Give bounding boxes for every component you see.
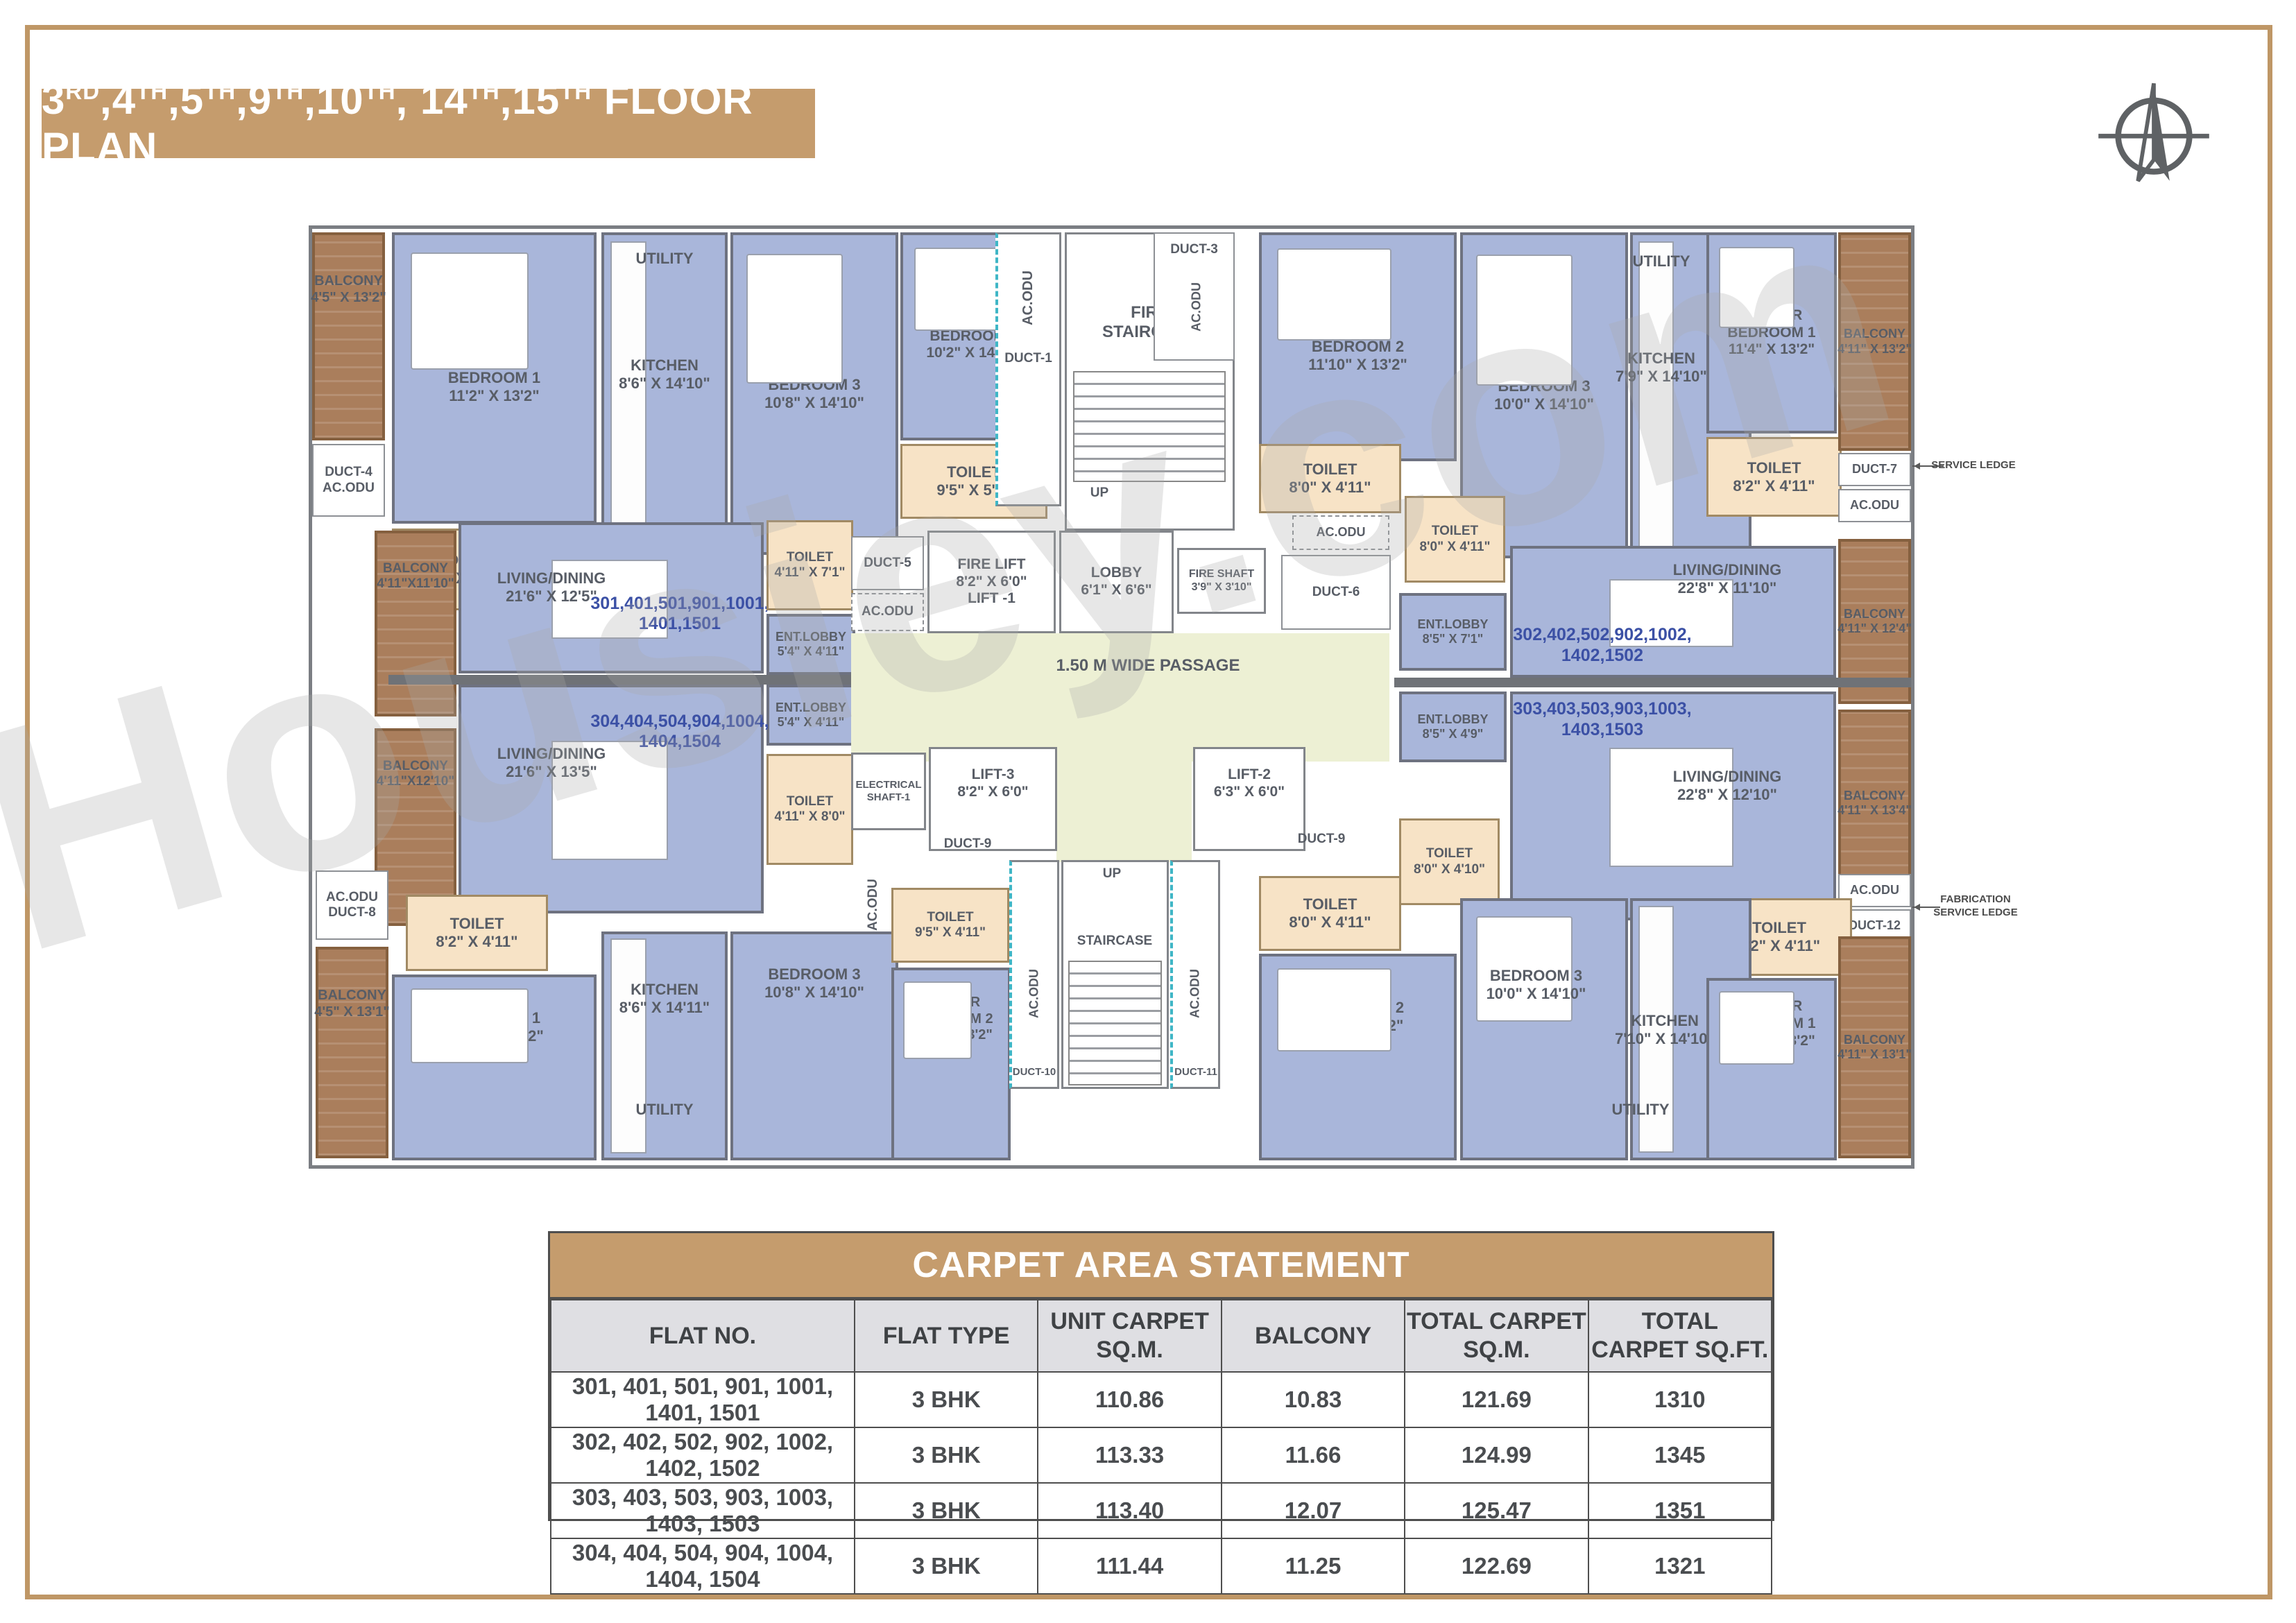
duct-4-box-label: DUCT-4AC.ODU [314,445,384,515]
utility-303-label-text: UTILITY [1611,1101,1669,1119]
acodu-1-vlabel: AC.ODU [1001,246,1056,350]
ent-lobby-303-text: 8'5" X 4'9" [1423,727,1484,741]
bedroom3-303-label-text: BEDROOM 3 [1490,967,1582,985]
duct-9-right-label-label: DUCT-9 [1283,827,1360,852]
table-cell: 10.83 [1222,1372,1405,1427]
bed-icon [411,988,529,1063]
table-row: 304, 404, 504, 904, 1004, 1404, 15043 BH… [551,1538,1772,1594]
ordinal-suffix: RD [65,78,100,104]
toilet-302-a: TOILET8'0" X 4'11" [1259,444,1401,513]
table-cell: 3 BHK [855,1538,1038,1594]
balcony-303-living: BALCONY4'11" X 13'4" [1838,710,1911,897]
toilet-301-b-text: TOILET [787,550,833,565]
ent-lobby-302-text: ENT.LOBBY [1417,617,1488,632]
electrical-shaft: ELECTRICALSHAFT-1 [851,753,926,830]
living-302-label-label: LIVING/DINING22'8" X 11'10" [1644,551,1810,607]
bedroom3-301-text: 10'8" X 14'10" [764,394,864,412]
staircase-lower-label-label: STAIRCASE [1063,929,1167,954]
fabrication-ledge-note: FABRICATIONSERVICE LEDGE [1924,886,2028,927]
acodu-11-vlabel: AC.ODU [1174,936,1216,1051]
utility-302-label-label: UTILITY [1599,248,1724,275]
duct-8-box-text: DUCT-8 [328,905,376,920]
table-cell: 110.86 [1038,1372,1221,1427]
acodu-7-box-label: AC.ODU [1840,490,1910,521]
balcony-303: BALCONY4'11" X 13'1" [1838,936,1911,1158]
duct-5-box: DUCT-5 [851,536,924,590]
acodu-302-box-text: AC.ODU [1317,525,1366,540]
duct-10-label-label: DUCT-10 [1004,1061,1065,1083]
balcony-301-label: BALCONY4'5" X 13'2" [315,235,382,476]
floor-plan-title-text: 3RD,4TH,5TH,9TH,10TH, 14TH,15TH FLOOR PL… [42,76,815,171]
lobby-text: 6'1" X 6'6" [1081,582,1151,599]
table-cell: 121.69 [1405,1372,1588,1427]
table-cell: 124.99 [1405,1427,1588,1483]
wing-divider-right [1394,678,1911,687]
duct-5-box-label: DUCT-5 [853,538,923,589]
utility-301-label-label: UTILITY [601,245,728,273]
kitchen-302-label-text: KITCHEN [1627,350,1695,368]
flatnums-302-text: 1402,1502 [1561,646,1643,667]
balcony-303-living-text: BALCONY [1844,789,1905,803]
table-cell: 3 BHK [855,1483,1038,1538]
ent-lobby-303-label: ENT.LOBBY8'5" X 4'9" [1402,694,1504,759]
toilet-302-c-text: TOILET [1432,524,1478,539]
bed-icon [1277,968,1391,1051]
lobby-text: LOBBY [1091,565,1142,582]
bedroom3-304-text: 10'8" X 14'10" [764,984,864,1002]
kitchen-302-label-text: 7'9" X 14'10" [1616,368,1707,386]
bed-icon [1277,248,1391,341]
bed-icon [914,248,999,332]
kitchen-304-label-label: KITCHEN8'6" X 14'11" [601,971,728,1027]
acodu-5-box-label: AC.ODU [853,594,923,630]
kitchen-303-label-text: 7'10" X 14'10" [1615,1030,1715,1048]
living-304-label-label: LIVING/DINING21'6" X 13'5" [468,735,635,791]
lift-2-text: 6'3" X 6'0" [1214,784,1285,801]
toilet-301-b-text: 4'11" X 7'1" [774,565,845,581]
flatnums-301-text: 1401,1501 [639,614,721,635]
kitchen-304-label-text: 8'6" X 14'11" [619,999,710,1017]
utility-301-label: UTILITY [601,245,728,273]
toilet-304-c: TOILET9'5" X 4'11" [891,888,1009,963]
master-bedroom1-304: MASTERBEDROOM 111'10" X 13'2" [392,974,597,1160]
toilet-302-b: TOILET8'2" X 4'11" [1706,437,1842,517]
living-303-label-text: 22'8" X 12'10" [1677,786,1777,804]
staircase-lower-steps [1068,961,1162,1085]
lift-3-text: LIFT-3 [972,766,1015,784]
toilet-304-b-text: TOILET [787,794,833,809]
duct-9-right-label: DUCT-9 [1283,827,1360,852]
lift-2-text: LIFT-2 [1228,766,1271,784]
duct-9-left-label: DUCT-9 [929,832,1006,857]
service-ledge-note: SERVICE LEDGE [1925,452,2022,479]
duct-11-label-label: DUCT-11 [1165,1061,1226,1083]
toilet-303-a: TOILET8'0" X 4'11" [1259,876,1401,951]
toilet-302-a-label: TOILET8'0" X 4'11" [1261,446,1399,511]
col-header: UNIT CARPETSQ.M. [1038,1300,1221,1372]
table-cell: 1321 [1588,1538,1772,1594]
acodu-bottom-left-vlabel-text: AC.ODU [866,879,881,931]
carpet-grid: FLAT NO.FLAT TYPEUNIT CARPETSQ.M.BALCONY… [550,1299,1772,1595]
acodu-3-vlabel: AC.ODU [1169,264,1224,350]
flatnums-303-text: 303,403,503,903,1003, [1513,699,1691,720]
balcony-301-text: 4'5" X 13'2" [311,290,386,307]
balcony-301-living-label: BALCONY4'11"X11'10" [377,533,454,741]
toilet-301-b-label: TOILET4'11" X 7'1" [769,522,851,608]
acodu-3-vlabel-text: AC.ODU [1189,282,1203,332]
ent-lobby-304-label: ENT.LOBBY5'4" X 4'11" [769,687,853,743]
ent-lobby-301: ENT.LOBBY5'4" X 4'11" [766,614,855,675]
duct-1-label-text: DUCT-1 [1004,351,1052,366]
fire-staircase-steps [1073,371,1226,482]
flatnums-301-text: 301,401,501,901,1001, [590,594,769,615]
toilet-304-b-text: 4'11" X 8'0" [774,809,845,825]
lift-3-text: 8'2" X 6'0" [957,784,1028,801]
ent-lobby-301-text: 5'4" X 4'11" [778,644,845,659]
duct-5-box-text: DUCT-5 [864,556,911,571]
toilet-304-c-text: 9'5" X 4'11" [915,925,986,941]
bed-icon [1719,991,1794,1065]
toilet-304-a-text: 8'2" X 4'11" [436,933,517,951]
passage-lower [1056,759,1192,862]
toilet-302-c-label: TOILET8'0" X 4'11" [1407,498,1503,581]
table-cell: 1345 [1588,1427,1772,1483]
acodu-10-vlabel-label: AC.ODU [1013,936,1055,1051]
passage-label: 1.50 M WIDE PASSAGE [1009,652,1287,680]
toilet-302-a-text: 8'0" X 4'11" [1289,479,1371,497]
table-cell: 11.66 [1222,1427,1405,1483]
toilet-301-b: TOILET4'11" X 7'1" [766,520,853,610]
bedroom3-303-label-label: BEDROOM 310'0" X 14'10" [1462,957,1611,1013]
service-ledge-note-label: SERVICE LEDGE [1925,452,2022,479]
toilet-303-b-label: TOILET8'0" X 4'10" [1401,821,1498,903]
carpet-grid-head: FLAT NO.FLAT TYPEUNIT CARPETSQ.M.BALCONY… [551,1300,1772,1372]
acodu-11-vlabel-label: AC.ODU [1174,936,1216,1051]
acodu-10-vlabel-text: AC.ODU [1027,969,1041,1018]
service-ledge-note-text: SERVICE LEDGE [1931,459,2015,472]
toilet-303-c-text: TOILET [1752,919,1806,937]
living-302-label: LIVING/DINING22'8" X 11'10" [1644,551,1810,607]
kitchen-301-label-text: 8'6" X 14'10" [619,375,710,393]
fire-lift-text: LIFT -1 [968,590,1016,608]
ent-lobby-302: ENT.LOBBY8'5" X 7'1" [1399,593,1507,671]
electrical-shaft-text: ELECTRICAL [856,779,922,791]
toilet-303-b-text: TOILET [1426,846,1473,861]
table-cell: 113.33 [1038,1427,1221,1483]
balcony-302-living-text: BALCONY [1844,607,1905,621]
toilet-303-a-label: TOILET8'0" X 4'11" [1261,878,1399,949]
kitchen-303-label-text: KITCHEN [1631,1012,1699,1030]
carpet-area-table: CARPET AREA STATEMENT FLAT NO.FLAT TYPEU… [548,1231,1774,1521]
toilet-304-a-text: TOILET [450,915,504,933]
ent-lobby-302-text: 8'5" X 7'1" [1423,632,1484,646]
ent-lobby-303: ENT.LOBBY8'5" X 4'9" [1399,692,1507,762]
flatnums-301-label: 301,401,501,901,1001,1401,1501 [597,586,763,642]
duct-8-box-label: AC.ODUDUCT-8 [317,872,387,938]
kitchen-304-label-text: KITCHEN [631,981,699,999]
fire-lift-label: FIRE LIFT8'2" X 6'0"LIFT -1 [929,533,1054,631]
table-row: 302, 402, 502, 902, 1002, 1402, 15023 BH… [551,1427,1772,1483]
acodu-1-vlabel-label: AC.ODU [1001,246,1056,350]
acodu-7-box: AC.ODU [1838,489,1911,522]
acodu-302-box-label: AC.ODU [1294,517,1388,549]
balcony-302-living-text: 4'11" X 12'4" [1837,621,1912,636]
table-cell: 122.69 [1405,1538,1588,1594]
toilet-304-b-label: TOILET4'11" X 8'0" [769,756,851,863]
table-cell: 3 BHK [855,1372,1038,1427]
up-2-label-label: UP [1084,864,1140,884]
flatnums-303-label: 303,403,503,903,1003,1403,1503 [1516,694,1689,746]
duct-10-label: DUCT-10 [1004,1061,1065,1083]
living-303-label: LIVING/DINING22'8" X 12'10" [1644,758,1810,814]
balcony-301-text: BALCONY [314,273,383,290]
acodu-bottom-left-vlabel-label: AC.ODU [853,832,894,978]
duct-4-box-text: AC.ODU [323,481,375,496]
balcony-302-label: BALCONY4'11" X 13'2" [1841,235,1908,448]
duct-9-left-label-label: DUCT-9 [929,832,1006,857]
toilet-302-b-text: TOILET [1747,459,1801,477]
utility-302-label-text: UTILITY [1632,252,1690,270]
living-301-label-text: LIVING/DINING [497,569,606,587]
duct-3-box-text: DUCT-3 [1170,242,1218,257]
ordinal-suffix: TH [468,78,500,104]
flatnums-302-label: 302,402,502,902,1002,1402,1502 [1516,619,1689,671]
table-cell: 125.47 [1405,1483,1588,1538]
up-1-label-text: UP [1090,486,1108,501]
toilet-303-b: TOILET8'0" X 4'10" [1399,818,1500,905]
col-header: FLAT NO. [551,1300,855,1372]
table-cell: 11.25 [1222,1538,1405,1594]
living-301-label-text: 21'6" X 12'5" [506,587,597,606]
acodu-302-box: AC.ODU [1292,515,1389,550]
master-bedroom1-302-text: 11'4" X 13'2" [1729,341,1815,359]
ordinal-suffix: TH [204,78,236,104]
electrical-shaft-text: SHAFT-1 [867,791,911,804]
flatnums-303: 303,403,503,903,1003,1403,1503 [1516,694,1689,746]
acodu-3-vlabel-label: AC.ODU [1169,264,1224,350]
kitchen-304 [601,931,728,1160]
table-cell: 302, 402, 502, 902, 1002, 1402, 1502 [551,1427,855,1483]
duct-7-box: DUCT-7 [1838,453,1911,486]
fire-lift-text: 8'2" X 6'0" [956,574,1027,591]
duct-12-box-text: DUCT-12 [1849,918,1901,933]
table-cell: 1351 [1588,1483,1772,1538]
balcony-304-living-text: BALCONY [383,759,448,774]
duct-6-box: DUCT-6 [1281,555,1391,630]
fabrication-ledge-note-text: SERVICE LEDGE [1933,907,2017,920]
living-304-label: LIVING/DINING21'6" X 13'5" [468,735,635,791]
ent-lobby-304-text: 5'4" X 4'11" [778,715,845,730]
toilet-302-c-text: 8'0" X 4'11" [1419,540,1490,555]
kitchen-304-label: KITCHEN8'6" X 14'11" [601,971,728,1027]
duct-9-right-label-text: DUCT-9 [1298,832,1346,847]
acodu-bottom-left-vlabel: AC.ODU [853,832,894,978]
toilet-304-c-text: TOILET [927,910,973,925]
electrical-shaft-label: ELECTRICALSHAFT-1 [853,755,924,828]
up-2-label: UP [1084,864,1140,884]
acodu-10-vlabel: AC.ODU [1013,936,1055,1051]
table-row: 301, 401, 501, 901, 1001, 1401, 15013 BH… [551,1372,1772,1427]
balcony-301: BALCONY4'5" X 13'2" [312,232,385,440]
duct-7-box-text: DUCT-7 [1852,462,1897,476]
toilet-301-c-text: TOILET [947,463,1001,481]
toilet-302-b-text: 8'2" X 4'11" [1733,477,1815,495]
master-bedroom1-301: MASTERBEDROOM 111'2" X 13'2" [392,232,597,524]
balcony-302-text: BALCONY [1844,327,1905,341]
flatnums-302-text: 302,402,502,902,1002, [1513,625,1691,646]
bed-icon [1719,247,1794,328]
duct-7-box-label: DUCT-7 [1840,454,1910,485]
ent-lobby-301-text: ENT.LOBBY [776,630,846,644]
col-header: FLAT TYPE [855,1300,1038,1372]
ordinal-suffix: TH [560,78,592,104]
fire-shaft-label: FIRE SHAFT3'9" X 3'10" [1179,550,1264,612]
utility-304-label-text: UTILITY [635,1101,693,1119]
bed-icon [903,981,972,1059]
balcony-303-living-label: BALCONY4'11" X 13'4" [1841,712,1908,894]
utility-304-label: UTILITY [601,1096,728,1124]
acodu-12-box-text: AC.ODU [1850,883,1899,898]
acodu-5-box: AC.ODU [851,593,924,631]
balcony-301-living: BALCONY4'11"X11'10" [375,531,456,716]
utility-303-label: UTILITY [1578,1096,1703,1124]
toilet-303-a-text: TOILET [1303,895,1357,913]
kitchen-301-label: KITCHEN8'6" X 14'10" [601,347,728,402]
balcony-303-label: BALCONY4'11" X 13'1" [1841,939,1908,1156]
toilet-304-c-label: TOILET9'5" X 4'11" [893,890,1007,961]
duct-4-box: DUCT-4AC.ODU [312,444,385,517]
master-bedroom2-303: MASTERBEDROOM 212'1" X 13'2" [1259,954,1457,1160]
ent-lobby-304-text: ENT.LOBBY [776,701,846,715]
bedroom3-303-label: BEDROOM 310'0" X 14'10" [1462,957,1611,1013]
balcony-303-living-text: 4'11" X 13'4" [1837,803,1912,818]
living-304-label-text: LIVING/DINING [497,745,606,763]
ent-lobby-302-label: ENT.LOBBY8'5" X 7'1" [1402,596,1504,668]
fire-shaft-text: 3'9" X 3'10" [1192,581,1252,594]
fire-shaft-text: FIRE SHAFT [1189,568,1254,581]
ent-lobby-304: ENT.LOBBY5'4" X 4'11" [766,685,855,746]
balcony-302-text: 4'11" X 13'2" [1837,342,1912,357]
carpet-header-row: FLAT NO.FLAT TYPEUNIT CARPETSQ.M.BALCONY… [551,1300,1772,1372]
lobby-label: LOBBY6'1" X 6'6" [1061,533,1172,631]
balcony-302: BALCONY4'11" X 13'2" [1838,232,1911,451]
duct-1-label-label: DUCT-1 [995,347,1061,371]
balcony-303-text: 4'11" X 13'1" [1837,1047,1912,1062]
staircase-lower-label-text: STAIRCASE [1077,934,1152,949]
toilet-302-b-label: TOILET8'2" X 4'11" [1708,439,1840,515]
duct-10-label-text: DUCT-10 [1013,1066,1056,1079]
table-cell: 1310 [1588,1372,1772,1427]
balcony-301-living-text: BALCONY [383,561,448,576]
toilet-304-b: TOILET4'11" X 8'0" [766,754,853,865]
bed-icon [411,252,529,370]
toilet-303-b-text: 8'0" X 4'10" [1414,862,1485,877]
bedroom3-301: BEDROOM 310'8" X 14'10" [730,232,898,555]
fabrication-ledge-note-label: FABRICATIONSERVICE LEDGE [1924,886,2028,927]
toilet-304-a: TOILET8'2" X 4'11" [406,895,548,971]
acodu-5-box-text: AC.ODU [862,604,914,619]
bedroom3-302-text: 10'0" X 14'10" [1494,395,1594,413]
master-bedroom1-301-text: 11'2" X 13'2" [449,387,539,405]
balcony-304-text: 4'5" X 13'1" [314,1004,390,1021]
balcony-304-text: BALCONY [318,988,386,1004]
master-bedroom2-302: MASTERBEDROOM 211'10" X 13'2" [1259,232,1457,461]
page-title: 3RD,4TH,5TH,9TH,10TH, 14TH,15TH FLOOR PL… [42,89,815,158]
table-cell: 12.07 [1222,1483,1405,1538]
ordinal-suffix: TH [364,78,396,104]
duct-11-label-text: DUCT-11 [1174,1066,1217,1079]
passage-label-label: 1.50 M WIDE PASSAGE [1009,652,1287,680]
lobby: LOBBY6'1" X 6'6" [1059,531,1174,633]
fire-lift-text: FIRE LIFT [958,556,1026,574]
balcony-304: BALCONY4'5" X 13'1" [316,947,388,1158]
kitchen-301-label-label: KITCHEN8'6" X 14'10" [601,347,728,402]
duct-8-box: AC.ODUDUCT-8 [316,870,388,940]
duct-11-label: DUCT-11 [1165,1061,1226,1083]
table-row: 303, 403, 503, 903, 1003, 1403, 15033 BH… [551,1483,1772,1538]
master-bedroom2-304: MASTERBEDROOM 210'7" X 13'2" [891,968,1011,1160]
flatnums-302: 302,402,502,902,1002,1402,1502 [1516,619,1689,671]
duct-6-box-text: DUCT-6 [1312,585,1360,600]
utility-303-label-label: UTILITY [1578,1096,1703,1124]
duct-8-box-text: AC.ODU [326,890,378,905]
bed-icon [1476,255,1573,386]
fabrication-ledge-note-text: FABRICATION [1940,893,2010,907]
table-cell: 304, 404, 504, 904, 1004, 1404, 1504 [551,1538,855,1594]
carpet-grid-body: 301, 401, 501, 901, 1001, 1401, 15013 BH… [551,1372,1772,1594]
ordinal-suffix: TH [272,78,304,104]
balcony-304-label: BALCONY4'5" X 13'1" [318,950,386,1194]
table-cell: 3 BHK [855,1427,1038,1483]
ent-lobby-303-text: ENT.LOBBY [1417,712,1488,727]
flatnums-303-text: 1403,1503 [1561,720,1643,741]
fire-lift: FIRE LIFT8'2" X 6'0"LIFT -1 [927,531,1056,633]
acodu-1-vlabel-text: AC.ODU [1020,271,1037,326]
acodu-11-vlabel-text: AC.ODU [1188,969,1202,1018]
north-compass-icon [2088,69,2220,208]
up-2-label-text: UP [1103,866,1121,882]
duct-1-label: DUCT-1 [995,347,1061,371]
kitchen-301-label-text: KITCHEN [631,357,699,375]
table-cell: 303, 403, 503, 903, 1003, 1403, 1503 [551,1483,855,1538]
table-cell: 113.40 [1038,1483,1221,1538]
bed-icon [746,254,843,384]
floor-plan: BALCONY4'5" X 13'2"DUCT-4AC.ODUMASTERBED… [274,205,2022,1231]
balcony-303-text: BALCONY [1844,1033,1905,1047]
table-cell: 301, 401, 501, 901, 1001, 1401, 1501 [551,1372,855,1427]
flatnums-304-text: 304,404,504,904,1004, [590,712,769,732]
duct-4-box-text: DUCT-4 [325,465,372,480]
bedroom3-304-text: BEDROOM 3 [768,965,860,984]
up-1-label-label: UP [1072,482,1127,504]
duct-6-box-label: DUCT-6 [1283,556,1389,628]
ent-lobby-301-label: ENT.LOBBY5'4" X 4'11" [769,617,853,672]
utility-302-label: UTILITY [1599,248,1724,275]
master-bedroom1-303: MASTERBEDROOM 112'0" X 13'2" [1706,978,1837,1160]
ordinal-suffix: TH [136,78,168,104]
passage-label-text: 1.50 M WIDE PASSAGE [1056,656,1240,676]
col-header: BALCONY [1222,1300,1405,1372]
balcony-304-living-text: 4'11"X12'10" [377,774,455,789]
living-302-label-text: 22'8" X 11'10" [1678,579,1777,597]
col-header: TOTAL CARPETSQ.M. [1405,1300,1588,1372]
living-304-label-text: 21'6" X 13'5" [506,763,597,781]
utility-304-label-label: UTILITY [601,1096,728,1124]
toilet-302-a-text: TOILET [1303,461,1357,479]
living-302-label-text: LIVING/DINING [1673,561,1781,579]
master-bedroom1-302: MASTERBEDROOM 111'4" X 13'2" [1706,232,1837,433]
toilet-302-c: TOILET8'0" X 4'11" [1405,496,1505,583]
